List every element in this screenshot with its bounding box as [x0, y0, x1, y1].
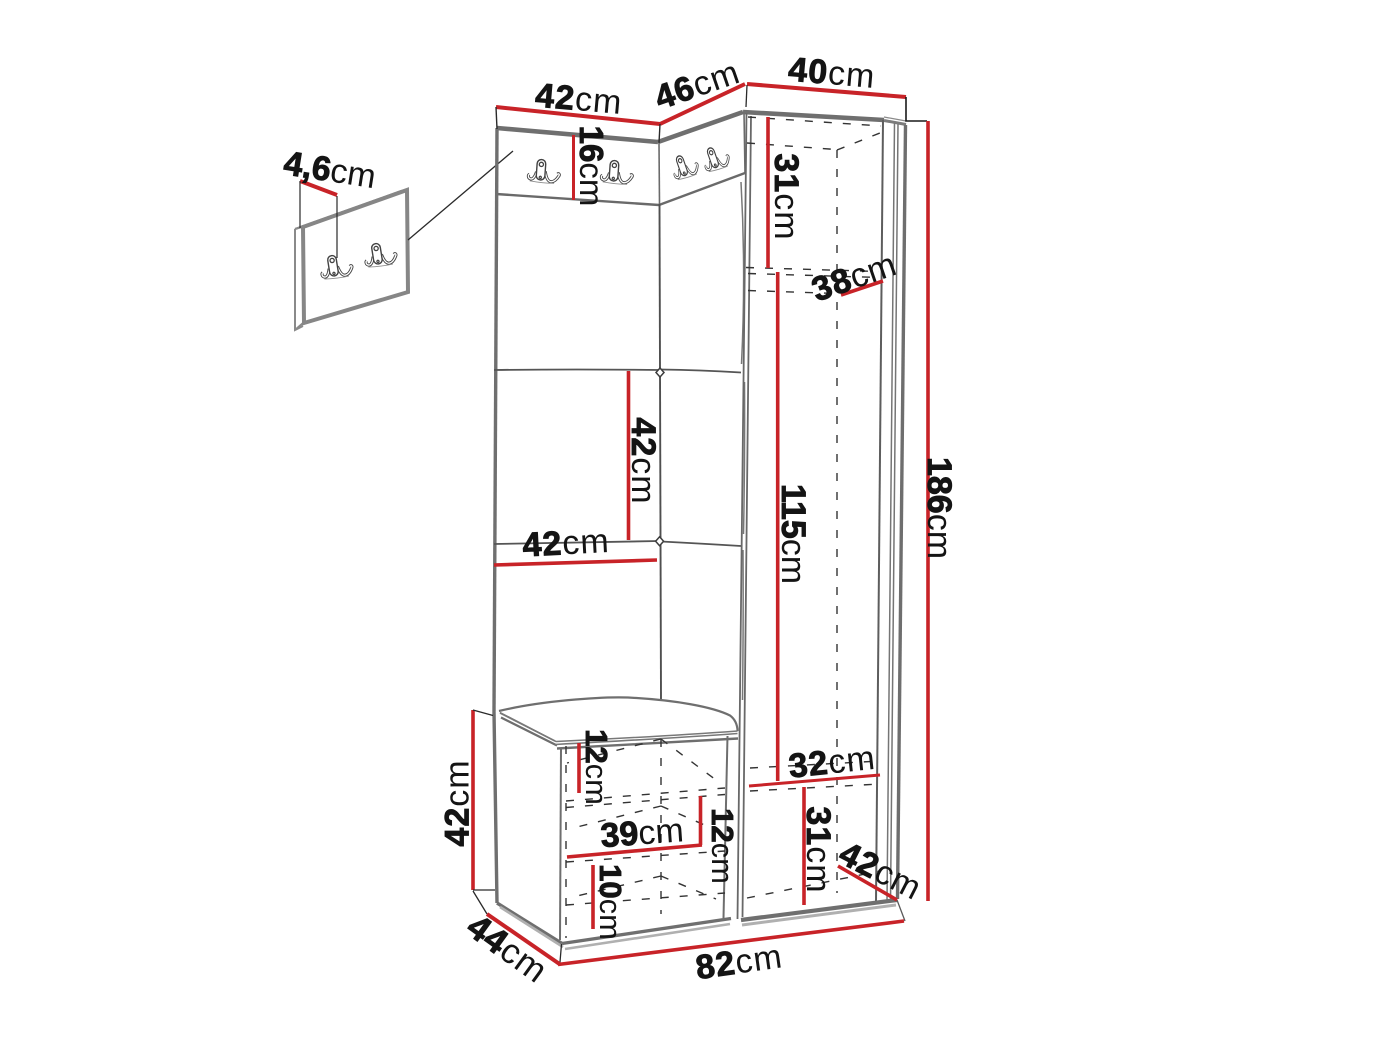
svg-text:39cm: 39cm	[599, 811, 685, 855]
svg-text:42cm: 42cm	[438, 759, 476, 846]
svg-text:10cm: 10cm	[593, 864, 628, 940]
svg-text:115cm: 115cm	[774, 484, 812, 584]
svg-text:186cm: 186cm	[920, 457, 958, 559]
svg-text:42cm: 42cm	[534, 77, 624, 122]
svg-text:31cm: 31cm	[799, 806, 837, 893]
svg-text:42cm: 42cm	[624, 417, 662, 504]
svg-text:31cm: 31cm	[767, 153, 805, 240]
svg-text:42cm: 42cm	[522, 522, 611, 565]
svg-text:16cm: 16cm	[573, 126, 610, 207]
svg-text:12cm: 12cm	[705, 808, 740, 884]
svg-text:12cm: 12cm	[579, 729, 614, 805]
svg-text:40cm: 40cm	[787, 51, 877, 96]
